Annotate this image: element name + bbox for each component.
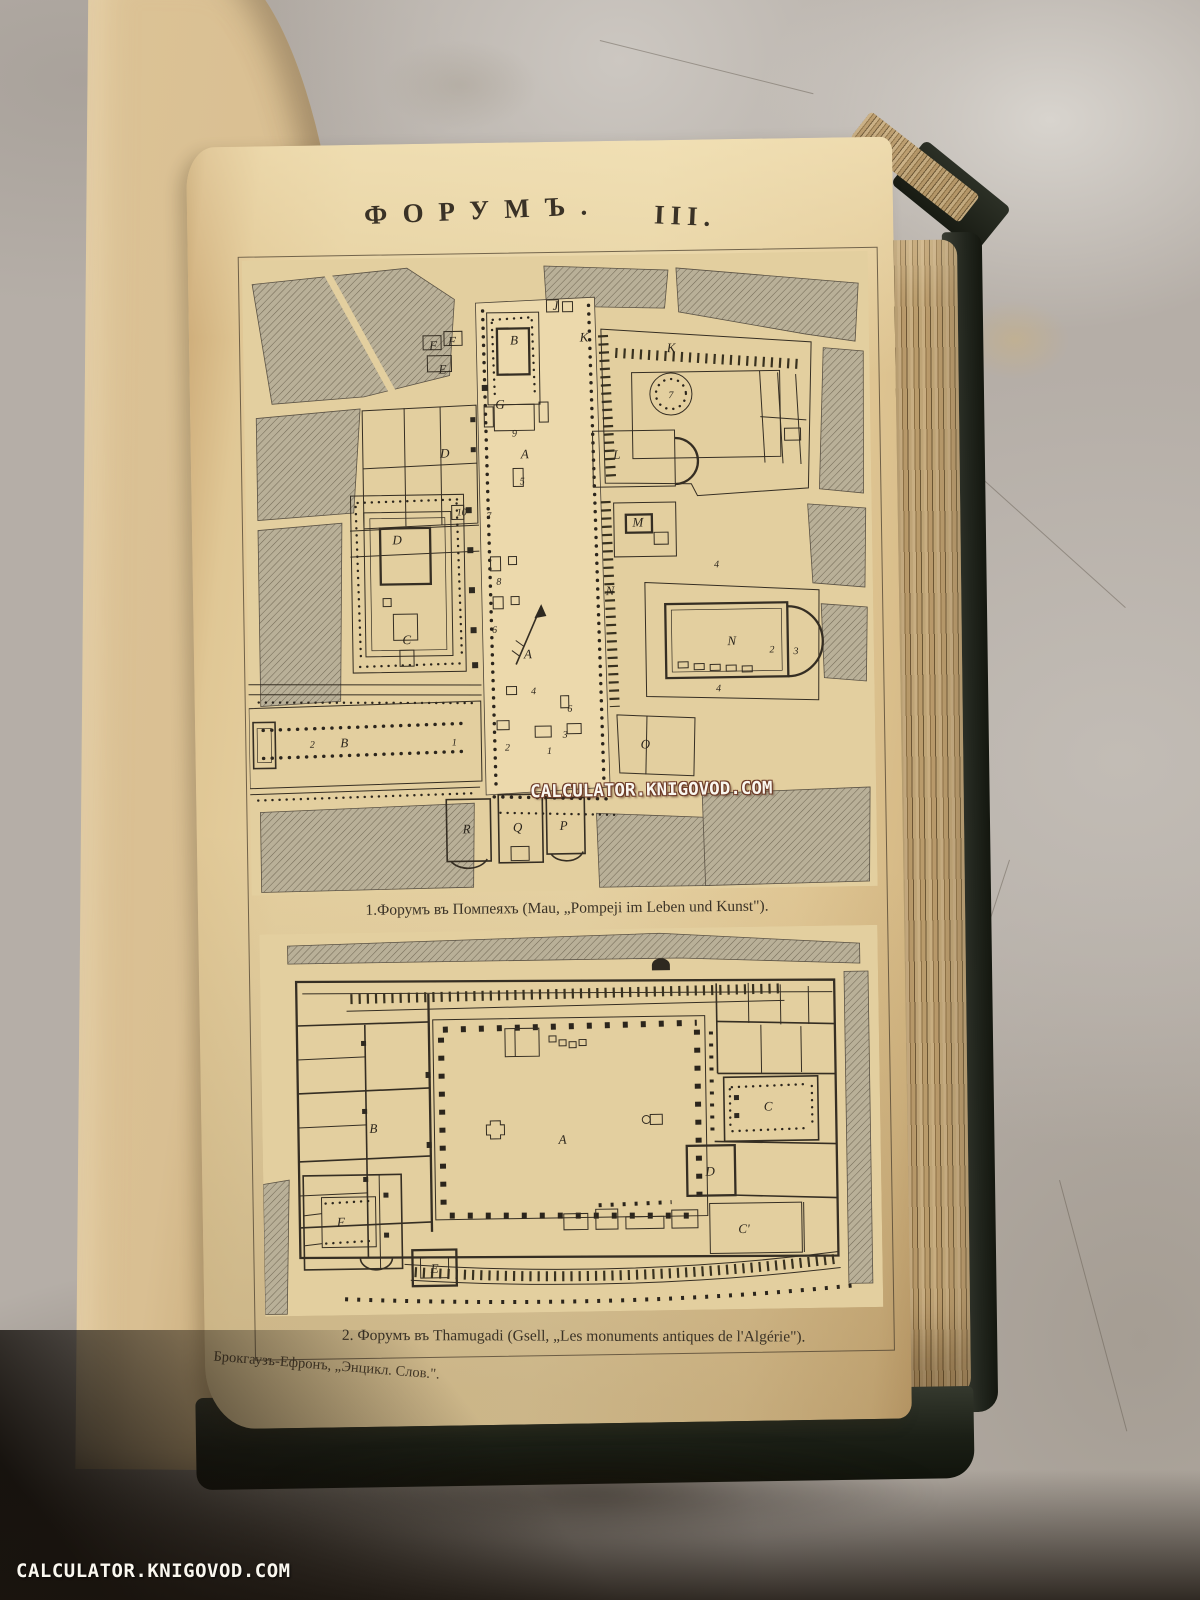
plate-page: ФОРУМЪ.III. [186,137,912,1430]
plan-label-4: 4 [716,683,721,694]
page-title: ФОРУМЪ.III. [187,189,893,231]
plan-label-B: B [340,735,348,750]
plan-label-R: R [462,821,471,836]
plan-label-C: C [764,1099,773,1114]
plan-label-A: A [558,1132,567,1147]
plan-label-A: A [523,646,532,661]
marble-crack [1059,1180,1127,1431]
plan-label-N: N [726,633,737,648]
plan-label-P: P [559,818,568,833]
plan-label-L: L [612,447,620,462]
plan-label-B: B [369,1121,377,1136]
plan-label-Q: Q [513,819,523,834]
plan-label-2: 2 [769,644,774,655]
plan-label-6: 6 [567,704,572,715]
plan-label-6: 6 [492,625,497,636]
watermark-corner: CALCULATOR.KNIGOVOD.COM [16,1560,291,1582]
plan-label-K: K [666,340,677,355]
plan-label-D: D [439,446,450,461]
plan-label-F: F [428,338,438,353]
plan-label-3: 3 [562,730,568,741]
marble-crack [600,40,814,94]
plan2-thamugadi-map: BACDC'EF [259,925,883,1317]
plan-label-2: 2 [310,740,315,751]
plan-label-B: B [510,332,518,347]
photo-of-open-book: ФОРУМЪ.III. [0,0,1200,1600]
title-word: ФОРУМЪ. [363,190,602,231]
plan-label-M: M [631,514,644,529]
plan-label-10: 10 [457,507,467,518]
plan-label-D: D [704,1163,715,1178]
plan-label-1: 1 [452,737,457,748]
plan-label-K: K [579,329,590,344]
plan-label-9: 9 [512,428,517,439]
plan-label-F: F [336,1214,346,1229]
title-numeral: III. [653,199,717,233]
plan-label-E: E [437,362,446,377]
plan-label-D: D [391,532,402,547]
plan-label-N: N [605,583,616,598]
plan-label-5: 5 [520,476,525,487]
plan-label-E: E [430,1261,439,1276]
plan-label-1: 1 [547,746,552,757]
marble-stain [380,40,540,130]
plan-label-O: O [641,736,651,751]
plan-label-C': C' [738,1221,750,1236]
plan-label-G: G [495,397,505,412]
watermark-center: CALCULATOR.KNIGOVOD.COM [530,778,773,802]
plan-label-C: C [402,632,411,647]
plan-label-4: 4 [714,559,719,570]
plan-label-3: 3 [792,646,798,657]
plan-label-2: 2 [505,743,510,754]
plan-label-F: F [447,333,457,348]
plan-label-4: 4 [531,686,536,697]
plan-label-8: 8 [496,577,501,588]
plan-label-A: A [520,446,529,461]
